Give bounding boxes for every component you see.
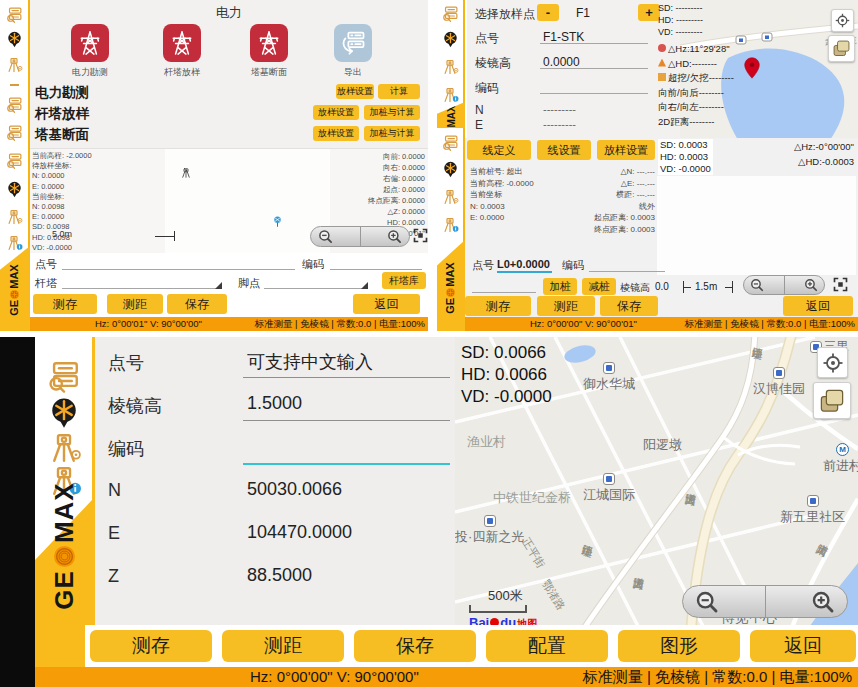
field-label: N	[108, 480, 121, 501]
power-menu: 电力 电力勘测 杆塔放样 塔基断面 导出 电力勘测 放样设置 计算 杆塔放样 放…	[30, 0, 428, 148]
prism-target-icon[interactable]	[6, 30, 23, 49]
line-stakeout: 线定义 线设置 放样设置 SD: 0.0003 HD: 0.0003 VD: -…	[465, 138, 858, 317]
foot-select[interactable]	[264, 274, 368, 289]
calc-button[interactable]: 计算	[378, 84, 420, 99]
field-underline	[540, 28, 648, 44]
stakeout-settings-button[interactable]: 放样设置	[597, 140, 655, 160]
line-settings-button[interactable]: 线设置	[537, 140, 591, 160]
field-underline	[243, 420, 450, 421]
total-station-icon[interactable]	[441, 188, 459, 206]
turn-icon	[658, 44, 666, 52]
total-station-icon[interactable]	[5, 208, 23, 226]
fullscreen-icon[interactable]	[833, 277, 848, 292]
add-stake-calc-button[interactable]: 加桩与计算	[364, 105, 420, 120]
geomax-logo: GE MAX	[35, 471, 93, 621]
dropdown-arrow-icon[interactable]	[215, 282, 222, 289]
map-scale-bar	[469, 605, 527, 613]
point-manager-icon[interactable]	[47, 359, 81, 393]
stake-pin-icon	[744, 57, 760, 79]
zoom-out-icon[interactable]	[318, 229, 333, 244]
point-id-label: 点号	[35, 257, 57, 272]
zoom-control	[310, 226, 410, 247]
bus-stop-icon	[773, 367, 785, 379]
survey-canvas[interactable]: 当前高程: -2.0000待放样坐标: N: 0.0000E: 0.0000 当…	[30, 148, 428, 253]
field-value: 104470.0000	[247, 522, 352, 543]
back-button[interactable]: 返回	[750, 630, 856, 662]
angle-status: Hz: 0°00'01" V: 90°00'00"	[95, 318, 202, 329]
mode-status: 标准测量 | 免棱镜 | 常数:0.0 | 电量:100%	[684, 318, 855, 331]
chainage-value[interactable]: L0+0.0000	[497, 258, 552, 273]
field-label: 点号	[108, 351, 144, 375]
stakeout-guide-readouts: △Hz:11°29'28" △HD:-------- 超挖/欠挖--------…	[658, 42, 734, 129]
mode-status: 标准测量 | 免棱镜 | 常数:0.0 | 电量:100%	[583, 668, 852, 687]
field-value[interactable]: 可支持中文输入	[247, 350, 373, 374]
panel-power: GE MAX 电力 电力勘测 杆塔放样 塔基断面 导出 电力勘测 放样设置 计算…	[0, 0, 428, 331]
stake-point-value: F1	[563, 6, 603, 20]
map-scale-tick	[155, 231, 175, 241]
move-icon	[658, 59, 666, 67]
sidebar: MAX GE MAX	[437, 0, 465, 331]
brand-wedge: MAX	[437, 102, 465, 128]
prism-marker-icon	[273, 215, 282, 228]
map-label: 投·四新之光	[455, 515, 524, 546]
stakeout-readouts: SD: --------- HD: --------- VD: --------…	[658, 2, 703, 38]
zoom-out-icon[interactable]	[750, 278, 764, 292]
locate-icon	[834, 12, 851, 29]
survey-form: 点号 编码 杆塔 脚点 杆塔库 测存 测距 保存 返回	[30, 253, 428, 317]
sidebar: GE MAX	[0, 0, 30, 331]
map-container[interactable]: SD: 0.0066 HD: 0.0066 VD: -0.0000 三里 江堤中…	[455, 337, 858, 630]
foot-label: 脚点	[238, 276, 260, 291]
map-scale-label: 1.5m	[695, 281, 717, 292]
field-value: ---------	[543, 103, 576, 115]
point-manager-icon[interactable]	[442, 5, 459, 22]
measure-form: 点号 可支持中文输入 棱镜高 1.5000 编码 N 50030.0066 E …	[95, 337, 455, 630]
geomax-ball-icon	[10, 290, 19, 299]
map-label: M 前进村	[823, 443, 858, 475]
field-label: E	[108, 523, 120, 544]
angle-status: Hz: 0°00'00" V: 90°00'00"	[250, 668, 419, 685]
prism-target-icon[interactable]	[442, 160, 459, 179]
line-define-button[interactable]: 线定义	[467, 140, 531, 160]
zoom-in-icon[interactable]	[811, 590, 835, 614]
total-station-icon[interactable]	[5, 56, 23, 74]
bus-stop-icon	[484, 515, 496, 527]
tile-tower-base-section[interactable]	[250, 24, 288, 62]
tile-power-survey[interactable]	[71, 24, 109, 62]
bus-stop-icon	[603, 473, 615, 485]
fullscreen-icon[interactable]	[413, 228, 428, 243]
prism-target-icon[interactable]	[442, 30, 459, 49]
zoom-control	[682, 585, 848, 618]
map-label: 御水华城	[583, 362, 635, 393]
field-input-focused[interactable]	[243, 463, 450, 465]
code-label: 编码	[302, 257, 324, 272]
page-title: 电力	[30, 4, 428, 22]
add-stake-button[interactable]: 加桩	[543, 278, 577, 295]
measure-dist-button[interactable]: 测距	[222, 630, 344, 662]
field-value: ---------	[543, 118, 576, 130]
map-scale-label: 500米	[488, 587, 523, 605]
line-canvas	[657, 176, 856, 275]
total-station-icon[interactable]	[441, 58, 459, 76]
status-bar: Hz: 0°00'00" V: 90°00'00" 标准测量 | 免棱镜 | 常…	[35, 667, 858, 687]
dig-icon	[658, 73, 666, 81]
select-stake-label: 选择放样点	[475, 6, 535, 23]
code-input[interactable]	[589, 256, 665, 272]
next-point-button[interactable]: +	[638, 4, 660, 21]
tile-export[interactable]	[334, 24, 372, 62]
tile-tower-stakeout[interactable]	[163, 24, 201, 62]
save-button[interactable]: 保存	[600, 296, 658, 316]
field-label: Z	[108, 566, 119, 587]
stakeout-settings-button[interactable]: 放样设置	[313, 105, 359, 120]
angle-status: Hz: 0°00'00" V: 90°00'01"	[530, 318, 637, 329]
zoom-in-icon[interactable]	[804, 278, 818, 292]
bezel	[0, 337, 35, 687]
geomax-ball-icon	[54, 546, 75, 567]
geomax-logo-partial: MAX	[446, 102, 457, 128]
map-scale-label: 5.0m	[52, 229, 72, 239]
total-station-info-icon[interactable]	[441, 216, 459, 234]
field-label: E	[475, 118, 483, 132]
field-label: 编码	[108, 437, 144, 461]
graphics-button[interactable]: 图形	[618, 630, 740, 662]
point-manager-icon[interactable]	[6, 124, 23, 141]
zoom-out-icon[interactable]	[695, 590, 719, 614]
total-station-info-icon[interactable]	[441, 86, 459, 104]
measure-dist-button[interactable]: 测距	[537, 296, 595, 316]
point-id-input[interactable]	[62, 255, 295, 270]
locate-button[interactable]	[817, 347, 848, 378]
tile-label: 电力勘测	[55, 66, 125, 79]
row-label: 杆塔放样	[35, 105, 89, 123]
map-scale-tick: 1.5m	[683, 279, 733, 295]
map-label: 江城国际	[583, 473, 635, 504]
save-button[interactable]: 保存	[354, 630, 476, 662]
canvas-white-area	[165, 149, 330, 254]
point-manager-icon[interactable]	[6, 152, 23, 169]
point-manager-icon[interactable]	[442, 134, 459, 151]
save-button[interactable]: 保存	[167, 294, 227, 314]
prism-height-value[interactable]: 0.0	[655, 281, 669, 292]
delta-readouts: △Hz:-0°00'00" △HD:-0.0003	[794, 139, 854, 169]
sidebar: GE MAX	[35, 337, 95, 667]
layers-button[interactable]	[813, 382, 851, 419]
panel-stakeout: MAX GE MAX	[437, 0, 858, 331]
point-manager-icon[interactable]	[6, 6, 23, 23]
field-underline	[540, 53, 648, 69]
tile-label: 塔基断面	[234, 66, 304, 79]
add-stake-calc-button[interactable]: 加桩与计算	[364, 126, 420, 141]
field-label: 棱镜高	[108, 394, 162, 418]
config-button[interactable]: 配置	[486, 630, 608, 662]
layers-icon	[817, 386, 847, 416]
measure-readouts: SD: 0.0066 HD: 0.0066 VD: -0.0000	[461, 342, 552, 408]
prism-target-icon[interactable]	[48, 395, 80, 431]
dropdown-arrow-icon[interactable]	[361, 282, 368, 289]
area-label: 渔业村	[467, 433, 506, 451]
field-label: 点号	[475, 30, 499, 47]
zoom-in-icon[interactable]	[387, 229, 402, 244]
mode-status: 标准测量 | 免棱镜 | 常数:0.0 | 电量:100%	[254, 318, 425, 331]
field-value: 88.5000	[247, 565, 312, 586]
prism-height-label: 棱镜高	[620, 281, 650, 295]
field-label: N	[475, 103, 484, 117]
back-button[interactable]: 返回	[353, 294, 420, 314]
field-value: 50030.0066	[247, 479, 342, 500]
locate-button[interactable]	[831, 9, 854, 32]
row-label: 塔基断面	[35, 126, 89, 144]
row-label: 电力勘测	[35, 84, 89, 102]
stakeout-settings-button[interactable]: 放样设置	[313, 126, 359, 141]
map-label: 阳逻墩	[643, 436, 682, 454]
screenshot-composite: GE MAX 电力 电力勘测 杆塔放样 塔基断面 导出 电力勘测 放样设置 计算…	[0, 0, 858, 687]
field-label: 棱镜高	[475, 55, 511, 72]
bus-stop-icon	[603, 362, 615, 374]
sd-readouts: SD: 0.0003 HD: 0.0003 VD: -0.0000	[658, 139, 713, 175]
code-input[interactable]	[330, 255, 422, 270]
prism-target-icon[interactable]	[6, 180, 23, 199]
locate-icon	[821, 351, 845, 375]
field-input[interactable]	[540, 78, 648, 94]
geomax-ball-icon	[446, 288, 455, 297]
sub-stake-button[interactable]: 减桩	[582, 278, 616, 295]
total-station-info-icon[interactable]	[5, 234, 23, 252]
stakeout-settings-button[interactable]: 放样设置	[336, 84, 374, 99]
point-manager-icon[interactable]	[6, 96, 23, 113]
tower-select[interactable]	[62, 274, 222, 289]
field-label: 编码	[475, 80, 499, 97]
line-readouts-mid: △N: ---.---△E: ---.--- 横距: ---.---线外 起点距…	[567, 166, 655, 235]
station-marker-icon	[180, 167, 192, 179]
divider-dash	[10, 84, 19, 86]
prev-point-button[interactable]: -	[537, 4, 559, 21]
tile-label: 杆塔放样	[147, 66, 217, 79]
measure-store-button[interactable]: 测存	[33, 294, 97, 314]
metro-icon: M	[836, 443, 849, 456]
point-id-label: 点号	[472, 258, 494, 273]
area-label: 中铁世纪金桥	[493, 489, 571, 507]
field-value[interactable]: 1.5000	[247, 393, 302, 414]
zoom-control	[743, 275, 825, 295]
back-button[interactable]: 返回	[783, 296, 853, 316]
panel-measure: GE MAX 点号 可支持中文输入 棱镜高 1.5000 编码 N 50030.…	[0, 337, 858, 687]
status-bar: Hz: 0°00'01" V: 90°00'00" 标准测量 | 免棱镜 | 常…	[30, 317, 428, 331]
measure-store-button[interactable]: 测存	[90, 630, 212, 662]
code-label: 编码	[562, 258, 584, 273]
total-station-icon[interactable]	[46, 430, 82, 466]
map-label: 汉博佳园	[753, 367, 805, 398]
line-readouts-left: 当前桩号: 超出当前高程: -0.0000 当前坐标N: 0.0003 E: 0…	[470, 166, 534, 224]
layers-button[interactable]	[828, 35, 855, 62]
map-label: 新五里社区	[780, 495, 845, 526]
layers-icon	[831, 38, 852, 59]
bus-stop-icon	[807, 495, 819, 507]
stakeout-form: 武大园三 选择放样点 - F1 + 点号 F1-STK 棱镜高 0.0000 编…	[467, 0, 858, 138]
tower-label: 杆塔	[35, 276, 57, 291]
field-underline	[243, 377, 450, 378]
measure-dist-button[interactable]: 测距	[107, 294, 163, 314]
status-bar: Hz: 0°00'00" V: 90°00'01" 标准测量 | 免棱镜 | 常…	[465, 317, 858, 331]
aux-input[interactable]	[472, 278, 536, 293]
measure-store-button[interactable]: 测存	[465, 296, 531, 316]
tile-label: 导出	[318, 66, 388, 79]
